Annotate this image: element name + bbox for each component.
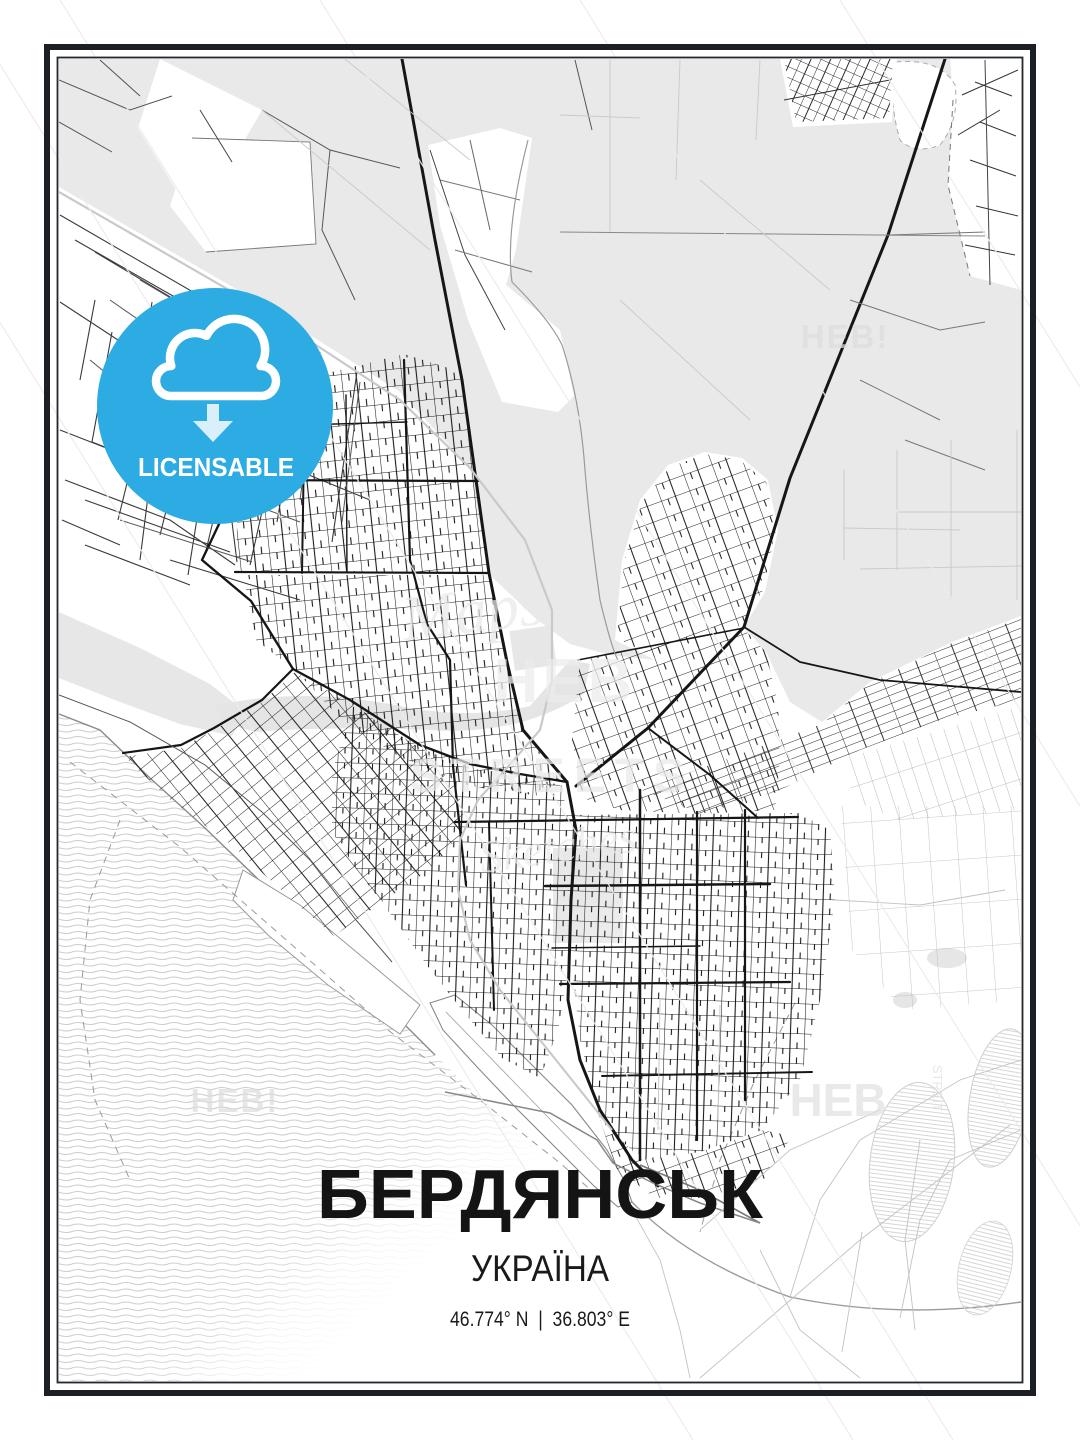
svg-text:LICENSABLE: LICENSABLE — [138, 452, 294, 482]
svg-text:HEB!: HEB! — [191, 1082, 280, 1119]
svg-text:БЕРДЯНСЬК: БЕРДЯНСЬК — [317, 1155, 763, 1233]
svg-text:STREETS: STREETS — [410, 750, 694, 803]
svg-text:STREIT: STREIT — [930, 1065, 945, 1111]
svg-text:HEB: HEB — [789, 1074, 886, 1126]
svg-text:46.774° N | 36.803° E: 46.774° N | 36.803° E — [450, 1308, 630, 1331]
svg-text:УКРАЇНА: УКРАЇНА — [471, 1248, 609, 1289]
svg-text:HEB!: HEB! — [801, 318, 890, 355]
svg-text:HEB: HEB — [494, 647, 637, 716]
